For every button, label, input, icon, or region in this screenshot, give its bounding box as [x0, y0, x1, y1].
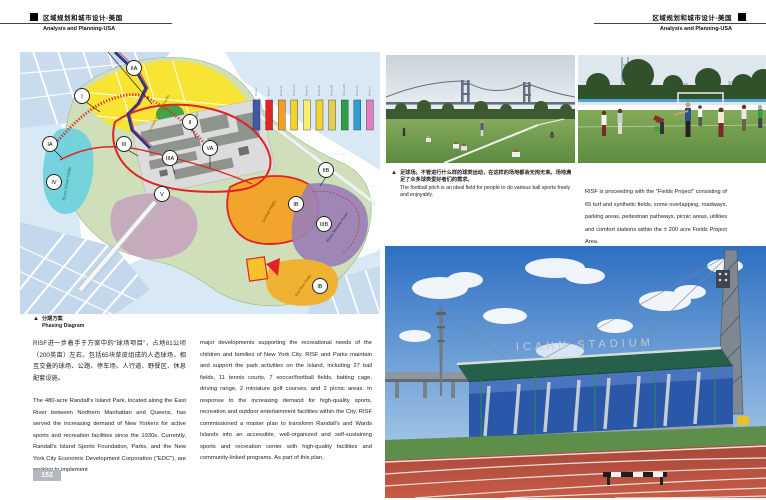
- svg-text:Phase II: Phase II: [267, 86, 271, 96]
- caption-arrow-icon: ▲: [391, 170, 397, 199]
- person: [742, 105, 747, 131]
- svg-text:Phase III: Phase III: [279, 85, 283, 96]
- marker-II: II: [183, 115, 198, 130]
- svg-text:II: II: [188, 120, 192, 126]
- marker-IIIA: IIIA: [163, 151, 178, 166]
- map-caption: ▲ 分期方案 Phasing Diagram: [33, 316, 84, 330]
- header-left-title-zh: 区域规划和城市设计-美国: [43, 12, 123, 22]
- column2-paragraph-en: major developments supporting the recrea…: [200, 338, 372, 465]
- marker-IB: IB: [289, 197, 304, 212]
- marker-V: V: [155, 187, 170, 202]
- field: [386, 119, 575, 163]
- svg-text:IV: IV: [51, 180, 57, 186]
- book-spread: 区域规划和城市设计-美国 Analysis and Planning-USA 区…: [0, 0, 766, 500]
- person: [758, 105, 763, 128]
- column1-paragraph-en: The 480-acre Randall's Island Park, loca…: [33, 396, 186, 477]
- header-right-title-zh: 区域规划和城市设计-美国: [652, 12, 732, 22]
- person: [718, 108, 724, 137]
- svg-text:Phase I: Phase I: [254, 87, 258, 96]
- header-left-square: [30, 13, 38, 21]
- svg-text:Phase IV: Phase IV: [355, 85, 359, 96]
- svg-text:Phase IB: Phase IB: [317, 85, 321, 96]
- photo-icahn-stadium: ICAHN STADIUM: [385, 246, 766, 498]
- svg-text:IB: IB: [293, 202, 299, 208]
- svg-text:Phase IIIB: Phase IIIB: [342, 84, 346, 96]
- page-number: 152: [33, 470, 61, 481]
- header-right-square: [738, 13, 746, 21]
- sign-board: [737, 416, 749, 425]
- football-caption-zh: 足球场。不管进行什么样的球类运动，在这样的场地都会无拘无束。场地满足了众多球类爱…: [400, 170, 575, 184]
- person: [481, 121, 484, 136]
- photo-football-pitch: [386, 55, 575, 163]
- zone-small-field: [247, 257, 268, 281]
- header-left-rule: [0, 23, 172, 24]
- fields-project-paragraph: RISF is proceeding with the "Fields Proj…: [585, 186, 727, 249]
- marker-IIIB: IIIB: [317, 217, 332, 232]
- svg-text:Phase V: Phase V: [367, 86, 371, 96]
- svg-text:V: V: [160, 192, 164, 198]
- svg-text:III: III: [122, 142, 127, 148]
- svg-text:VA: VA: [207, 146, 214, 152]
- svg-text:IIB: IIB: [323, 168, 330, 174]
- marker-IIA: IIA: [127, 61, 142, 76]
- map-caption-zh: 分期方案: [42, 316, 84, 323]
- football-caption-en: The football pitch is an ideal field for…: [400, 185, 575, 199]
- marker-VA: VA: [203, 141, 218, 156]
- phasing-diagram-map: Sunken Meadow Fields Bronx Shore Fields …: [20, 52, 380, 314]
- svg-text:IIIA: IIIA: [166, 156, 175, 162]
- svg-text:Phase IA: Phase IA: [304, 85, 308, 96]
- phasing-map-svg: Sunken Meadow Fields Bronx Shore Fields …: [20, 52, 380, 314]
- map-caption-en: Phasing Diagram: [42, 323, 84, 330]
- legend-item: Phase I: [253, 87, 260, 130]
- header-right-rule: [594, 23, 766, 24]
- person: [698, 105, 702, 126]
- svg-text:IA: IA: [47, 142, 53, 148]
- marker-IB-2: IB: [313, 279, 328, 294]
- svg-text:IIA: IIA: [131, 66, 138, 72]
- marker-III: III: [117, 137, 132, 152]
- blue-fence: [578, 99, 766, 102]
- football-caption: ▲ 足球场。不管进行什么样的球类运动，在这样的场地都会无拘无束。场地满足了众多球…: [391, 170, 575, 199]
- marker-IIB: IIB: [319, 163, 334, 178]
- marker-I: I: [75, 89, 90, 104]
- svg-text:IB: IB: [317, 284, 323, 290]
- person: [403, 128, 405, 136]
- header-left-title-en: Analysis and Planning-USA: [43, 26, 115, 32]
- header-right-title-en: Analysis and Planning-USA: [660, 26, 732, 32]
- marker-IA: IA: [43, 137, 58, 152]
- photo-kids-playing: [578, 55, 766, 163]
- svg-text:Phase IIB: Phase IIB: [330, 84, 334, 96]
- svg-text:IIIB: IIIB: [320, 222, 329, 228]
- svg-text:Phase IIA: Phase IIA: [292, 84, 296, 96]
- caption-arrow-icon: ▲: [33, 316, 39, 330]
- marker-IV: IV: [47, 175, 62, 190]
- column1-paragraph-zh: RISF进一步着手于方案中的“球场项目”，占地81公顷（200英亩）左右，包括6…: [33, 338, 186, 384]
